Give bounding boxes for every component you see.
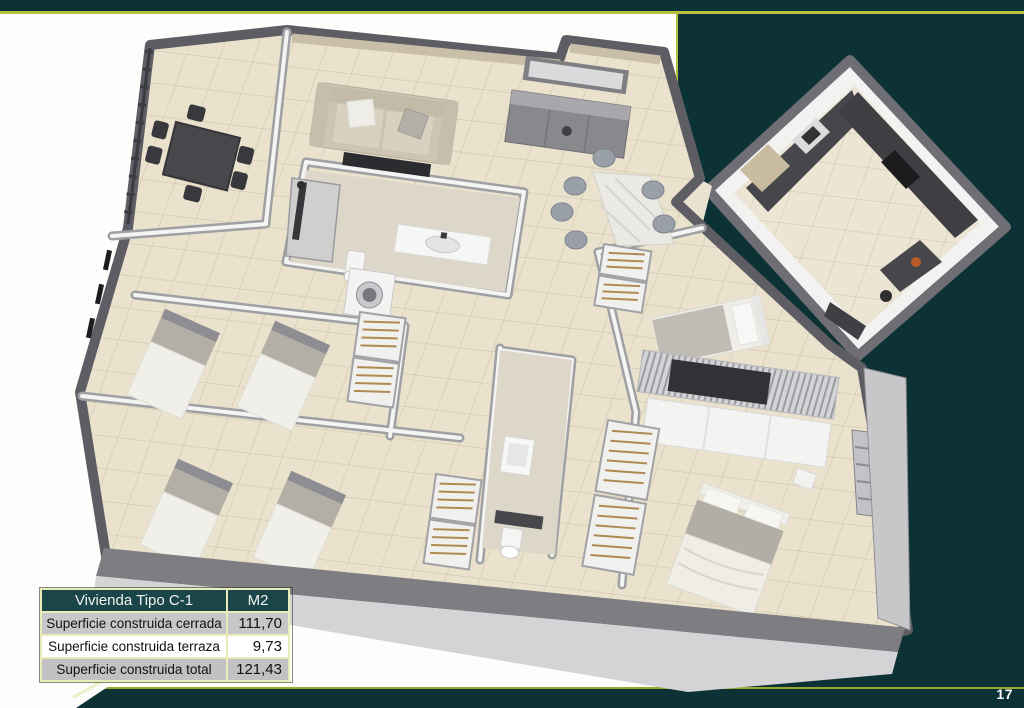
row-value: 9,73 (226, 634, 290, 659)
row-label: Superficie construida cerrada (40, 611, 228, 636)
row-label: Superficie construida terraza (40, 634, 228, 659)
pillow (347, 99, 376, 128)
row-value: 111,70 (226, 611, 290, 636)
table-header-row: Vivienda Tipo C-1 M2 (40, 588, 292, 613)
table-row: Superficie construida total 121,43 (40, 659, 292, 682)
shower (286, 178, 340, 262)
table-row: Superficie construida cerrada 111,70 (40, 613, 292, 636)
table-title: Vivienda Tipo C-1 (40, 588, 228, 613)
slide: Vivienda Tipo C-1 M2 Superficie construi… (0, 0, 1024, 708)
washing-machine (344, 268, 396, 320)
row-label: Superficie construida total (40, 657, 228, 682)
table-unit-header: M2 (226, 588, 290, 613)
table-row: Superficie construida terraza 9,73 (40, 636, 292, 659)
hall-wardrobe (594, 244, 651, 313)
sink (500, 436, 535, 476)
surface-table: Vivienda Tipo C-1 M2 Superficie construi… (40, 588, 292, 682)
row-value: 121,43 (226, 657, 290, 682)
page-number: 17 (996, 686, 1013, 702)
